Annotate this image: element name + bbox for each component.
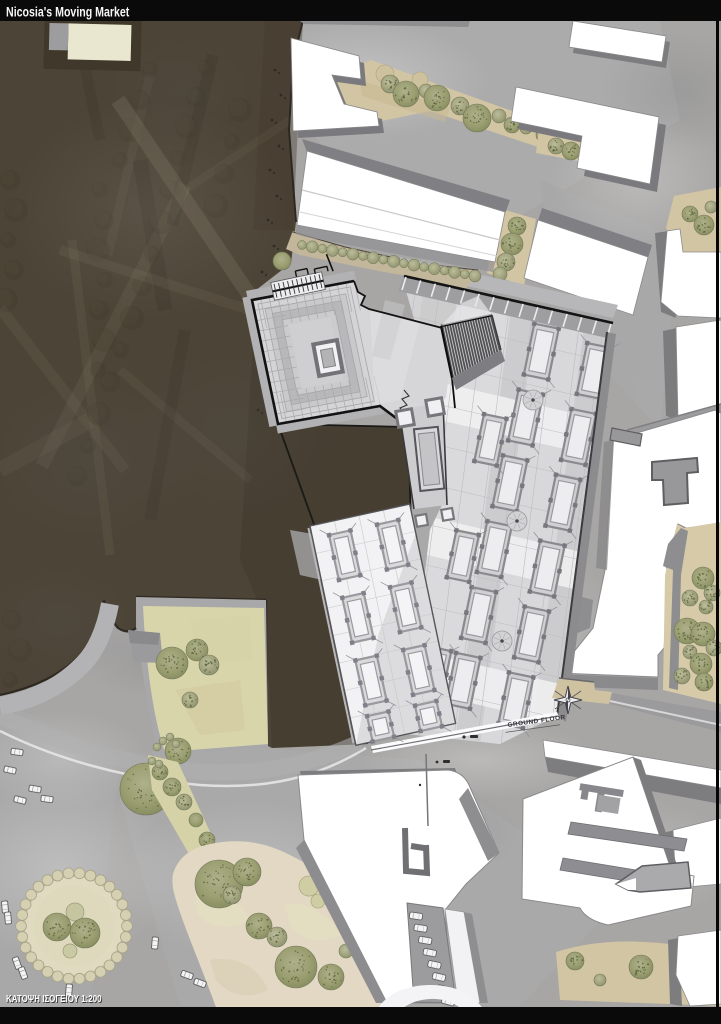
svg-text:ΚΑΤΟΨΗ ΙΣΟΓΕΙΟΥ 1:200: ΚΑΤΟΨΗ ΙΣΟΓΕΙΟΥ 1:200 (6, 993, 102, 1004)
svg-text:Nicosia's Moving Market: Nicosia's Moving Market (6, 4, 129, 20)
